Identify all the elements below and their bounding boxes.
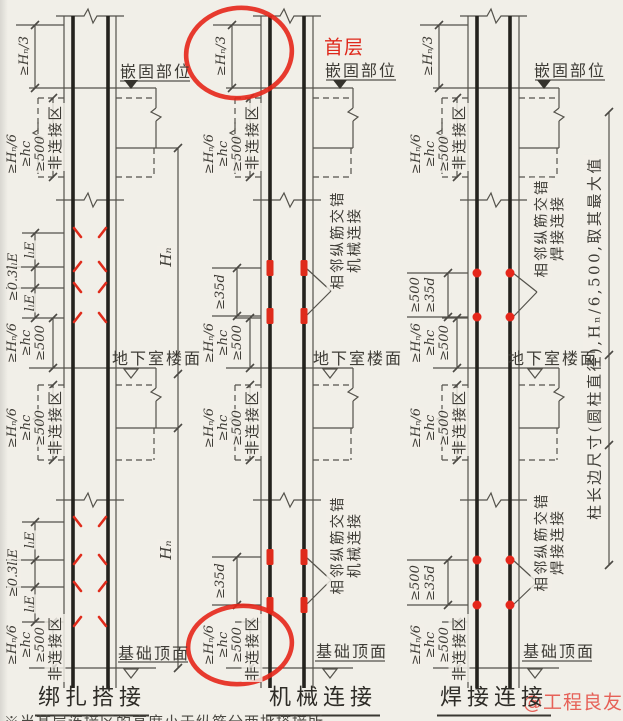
dim-500-weld-lower: ≥500 bbox=[409, 564, 423, 602]
non-connection-zone-mech-f2: 非连接区 bbox=[242, 388, 263, 456]
dim-hn6-mech-f3: ≥Hₙ/6 bbox=[203, 624, 217, 666]
dim-hc-mech-f1: ≥hc bbox=[217, 140, 231, 169]
non-connection-zone-weld-f1: 非连接区 bbox=[449, 103, 470, 171]
non-connection-zone-weld-f2: 非连接区 bbox=[449, 388, 470, 456]
dim-500-lap-f2a: ≥500 bbox=[34, 324, 48, 362]
dim-hc-lap-f1: ≥hc bbox=[20, 140, 34, 169]
dim-hc-weld-f3: ≥hc bbox=[424, 631, 438, 660]
dim-500-weld-upper: ≥500 bbox=[409, 276, 423, 314]
dim-hn6-mech-f2a: ≥Hₙ/6 bbox=[203, 322, 217, 364]
dim-hc-mech-f2a: ≥hc bbox=[217, 329, 231, 358]
floor-level-marker bbox=[124, 369, 138, 378]
floor-level-marker bbox=[528, 369, 542, 378]
leader-label-weld-upper-2: 焊接连接 bbox=[547, 194, 568, 262]
dim-lap-length-lower-2: lₗE bbox=[24, 595, 38, 614]
dim-hn6-mech-f2b: ≥Hₙ/6 bbox=[203, 407, 217, 449]
dim-lap-stagger-upper: ≥0.3lₗE bbox=[7, 252, 21, 302]
first-floor-annotation: 首层 bbox=[324, 33, 364, 60]
dim-hc-lap-f2b: ≥hc bbox=[20, 414, 34, 443]
dim-hn6-lap-f3: ≥Hₙ/6 bbox=[6, 624, 20, 666]
dim-hn3-weld: ≥Hₙ/3 bbox=[422, 35, 436, 77]
floor-level-marker bbox=[323, 369, 337, 378]
foundation-level-marker bbox=[528, 669, 542, 678]
foundation-level-marker bbox=[124, 669, 138, 678]
dim-35d-mech-lower: ≥35d bbox=[214, 562, 228, 600]
dim-hn6-weld-f1: ≥Hₙ/6 bbox=[410, 133, 424, 175]
dim-35d-mech-upper: ≥35d bbox=[214, 273, 228, 311]
foundation-level-marker bbox=[323, 669, 337, 678]
title-weld: 焊接连接 bbox=[437, 680, 551, 717]
dim-hn6-weld-f2a: ≥Hₙ/6 bbox=[410, 322, 424, 364]
dim-hn6-mech-f1: ≥Hₙ/6 bbox=[203, 133, 217, 175]
dim-hn3-lap: ≥Hₙ/3 bbox=[18, 35, 32, 77]
leader-label-mech-lower-2: 机械连接 bbox=[344, 511, 365, 579]
basement-floor-label-weld: 地下室楼面 bbox=[508, 345, 598, 369]
non-connection-zone-mech-f1: 非连接区 bbox=[242, 103, 263, 171]
non-connection-zone-lap-f3: 非连接区 bbox=[45, 614, 66, 682]
dim-hc-weld-f1: ≥hc bbox=[424, 140, 438, 169]
dim-hn6-lap-f2b: ≥Hₙ/6 bbox=[6, 407, 20, 449]
dim-500-weld-f2a: ≥500 bbox=[438, 324, 452, 362]
embedment-label-lap: 嵌固部位 bbox=[120, 58, 192, 82]
mechanical-coupler-marks bbox=[267, 260, 308, 613]
non-connection-zone-mech-f3: 非连接区 bbox=[242, 614, 263, 682]
dim-hn3-mech: ≥Hₙ/3 bbox=[215, 35, 229, 77]
non-connection-zone-weld-f3: 非连接区 bbox=[449, 614, 470, 682]
foundation-top-label-lap: 基础顶面 bbox=[118, 640, 190, 664]
foundation-top-label-mech: 基础顶面 bbox=[316, 638, 388, 662]
dim-500-mech-f2a: ≥500 bbox=[231, 324, 245, 362]
dim-35d-weld-upper: ≥35d bbox=[424, 276, 438, 314]
story-height-lower: Hₙ bbox=[157, 539, 175, 560]
non-connection-zone-lap-f1: 非连接区 bbox=[45, 103, 66, 171]
dim-hc-weld-f2b: ≥hc bbox=[424, 414, 438, 443]
lap-splice-marks bbox=[74, 228, 106, 626]
embedment-label-weld: 嵌固部位 bbox=[534, 57, 606, 81]
dim-lap-length-upper-1: lₗE bbox=[24, 241, 38, 260]
dim-lap-length-lower-1: lₗE bbox=[24, 531, 38, 550]
dim-hn6-weld-f3: ≥Hₙ/6 bbox=[410, 624, 424, 666]
drawing-canvas: ≥Hₙ/3 ≥Hₙ/6 ≥hc ≥500 非连接区 lₗE ≥0.3lₗE lₗ… bbox=[0, 0, 623, 721]
bottom-note: ※当某层连接区的高度小于纵筋分两批搭接所 bbox=[4, 711, 324, 721]
leader-label-weld-lower-2: 焊接连接 bbox=[547, 508, 568, 576]
dim-hc-mech-f3: ≥hc bbox=[217, 631, 231, 660]
story-height-upper: Hₙ bbox=[157, 246, 175, 267]
embedment-label-mech: 嵌固部位 bbox=[325, 57, 397, 81]
basement-floor-label-lap: 地下室楼面 bbox=[112, 345, 202, 369]
red-circle-annotation-top bbox=[180, 1, 297, 105]
dim-hc-lap-f2a: ≥hc bbox=[20, 329, 34, 358]
dim-35d-weld-lower: ≥35d bbox=[424, 564, 438, 602]
leader-label-mech-upper-2: 机械连接 bbox=[344, 206, 365, 274]
dim-hn6-lap-f2a: ≥Hₙ/6 bbox=[6, 322, 20, 364]
dim-hc-mech-f2b: ≥hc bbox=[217, 414, 231, 443]
dim-hc-weld-f2a: ≥hc bbox=[424, 329, 438, 358]
dim-lap-stagger-lower: ≥0.3lₗE bbox=[7, 548, 21, 598]
side-note: 柱长边尺寸(圆柱直径),Hₙ/6,500,取其最大值 bbox=[584, 155, 605, 521]
dim-hn6-lap-f1: ≥Hₙ/6 bbox=[6, 133, 20, 175]
dim-hc-lap-f3: ≥hc bbox=[20, 631, 34, 660]
basement-floor-label-mech: 地下室楼面 bbox=[313, 345, 403, 369]
non-connection-zone-lap-f2: 非连接区 bbox=[45, 388, 66, 456]
foundation-top-label-weld: 基础顶面 bbox=[523, 638, 595, 662]
dim-hn6-weld-f2b: ≥Hₙ/6 bbox=[410, 407, 424, 449]
dim-lap-length-upper-2: lₗE bbox=[24, 294, 38, 313]
